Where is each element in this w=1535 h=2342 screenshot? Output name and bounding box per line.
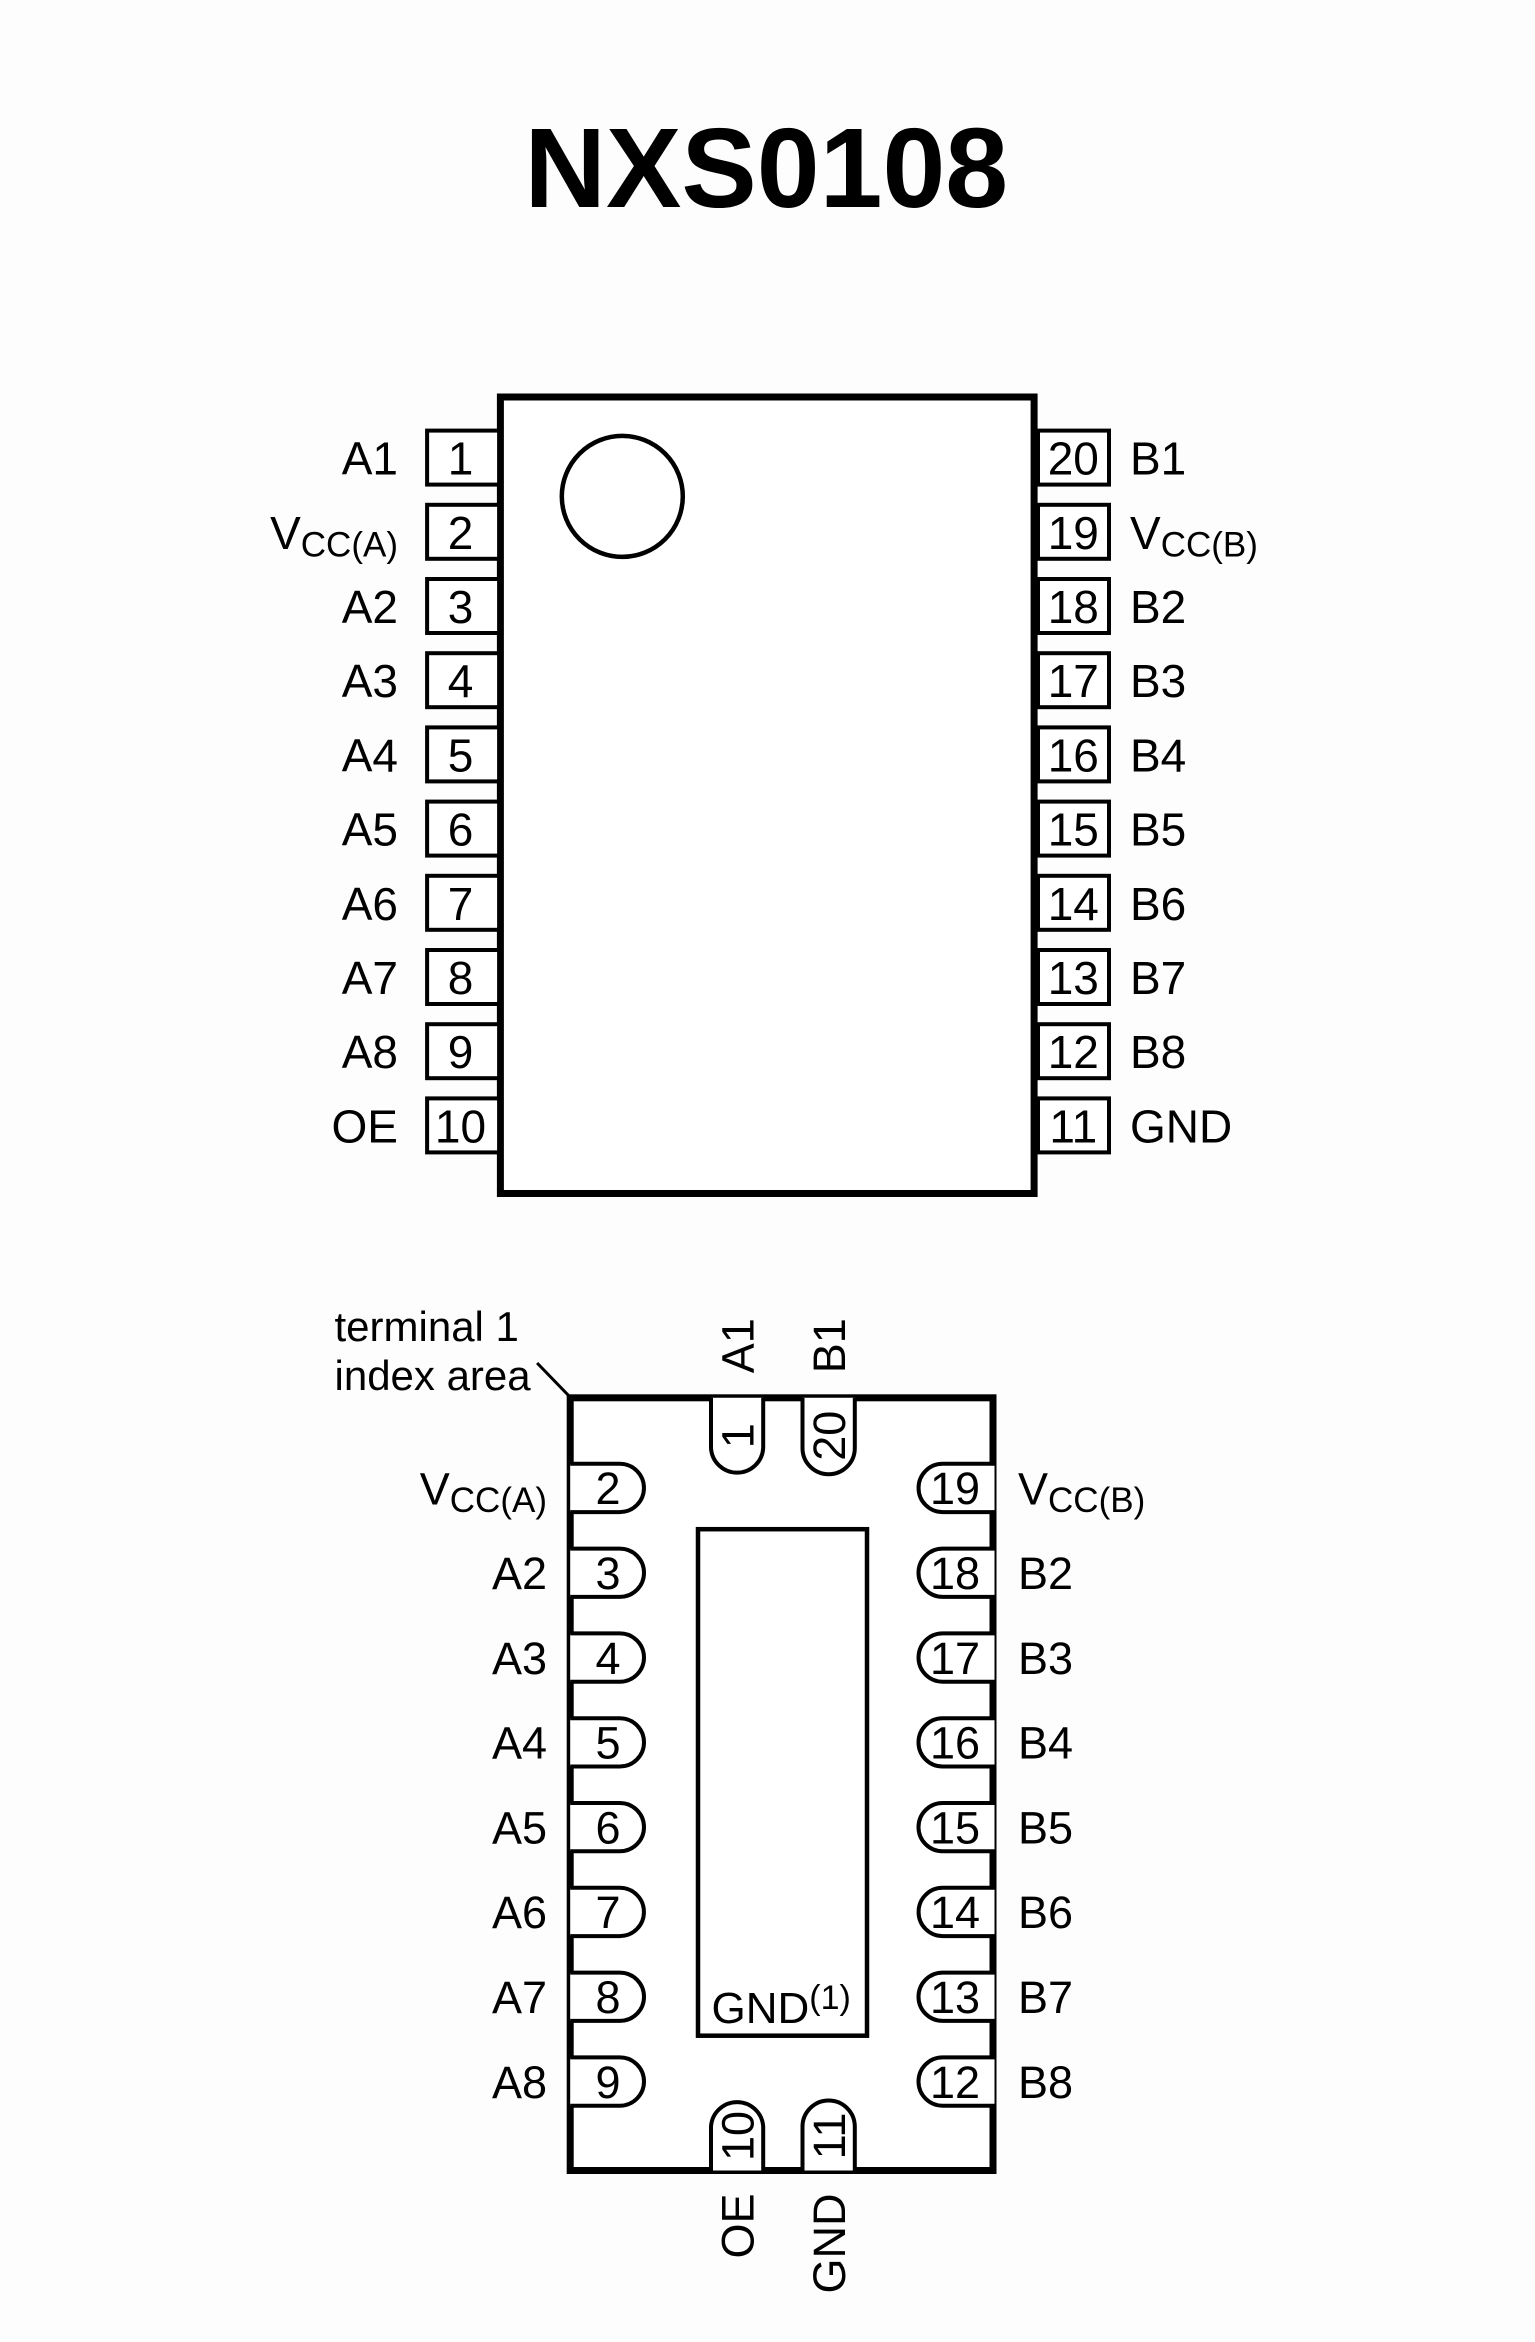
svg-text:3: 3 (448, 581, 474, 633)
svg-text:B2: B2 (1130, 581, 1186, 633)
svg-text:A3: A3 (342, 655, 398, 707)
svg-text:4: 4 (595, 1633, 620, 1684)
svg-text:8: 8 (448, 952, 474, 1004)
svg-text:6: 6 (595, 1803, 620, 1854)
svg-text:1: 1 (713, 1423, 764, 1448)
svg-text:GND: GND (804, 2194, 855, 2294)
svg-text:VCC(B): VCC(B) (1018, 1463, 1145, 1520)
svg-text:A2: A2 (342, 581, 398, 633)
svg-text:B4: B4 (1130, 729, 1186, 781)
svg-text:14: 14 (930, 1887, 980, 1938)
svg-text:9: 9 (595, 2057, 620, 2108)
svg-text:7: 7 (448, 878, 474, 930)
svg-text:A4: A4 (342, 729, 398, 781)
svg-text:B1: B1 (804, 1318, 855, 1373)
svg-text:11: 11 (1049, 1100, 1097, 1152)
svg-text:3: 3 (595, 1548, 620, 1599)
svg-text:B8: B8 (1018, 2057, 1073, 2108)
svg-text:B3: B3 (1130, 655, 1186, 707)
svg-text:A8: A8 (342, 1026, 398, 1078)
svg-text:B7: B7 (1018, 1972, 1073, 2023)
svg-text:B4: B4 (1018, 1718, 1073, 1769)
svg-text:13: 13 (930, 1972, 980, 2023)
svg-text:A5: A5 (492, 1803, 547, 1854)
svg-text:1: 1 (448, 433, 474, 485)
svg-text:A6: A6 (342, 878, 398, 930)
svg-text:17: 17 (1048, 655, 1099, 707)
svg-text:B5: B5 (1018, 1803, 1073, 1854)
svg-text:13: 13 (1048, 952, 1099, 1004)
svg-text:index area: index area (335, 1352, 532, 1399)
svg-text:A6: A6 (492, 1887, 547, 1938)
svg-text:B6: B6 (1018, 1887, 1073, 1938)
svg-text:B6: B6 (1130, 878, 1186, 930)
svg-text:A7: A7 (342, 952, 398, 1004)
svg-text:OE: OE (713, 2194, 764, 2259)
svg-text:18: 18 (930, 1548, 980, 1599)
svg-text:20: 20 (804, 1411, 855, 1461)
svg-text:A1: A1 (713, 1318, 764, 1373)
svg-text:11: 11 (804, 2113, 855, 2160)
svg-text:2: 2 (448, 507, 474, 559)
svg-text:16: 16 (1048, 729, 1099, 781)
svg-text:A1: A1 (342, 433, 398, 485)
svg-text:B7: B7 (1130, 952, 1186, 1004)
svg-text:9: 9 (448, 1026, 474, 1078)
svg-text:10: 10 (435, 1100, 486, 1152)
svg-text:6: 6 (448, 804, 474, 856)
svg-text:19: 19 (1048, 507, 1099, 559)
svg-text:2: 2 (595, 1463, 620, 1514)
svg-text:A3: A3 (492, 1633, 547, 1684)
svg-text:OE: OE (332, 1100, 398, 1152)
svg-text:12: 12 (930, 2057, 980, 2108)
svg-text:A5: A5 (342, 804, 398, 856)
svg-text:5: 5 (448, 729, 474, 781)
svg-text:B1: B1 (1130, 433, 1186, 485)
svg-text:A8: A8 (492, 2057, 547, 2108)
svg-text:A2: A2 (492, 1548, 547, 1599)
svg-text:10: 10 (713, 2111, 764, 2161)
svg-text:B8: B8 (1130, 1026, 1186, 1078)
svg-text:5: 5 (595, 1718, 620, 1769)
svg-text:8: 8 (595, 1972, 620, 2023)
svg-text:14: 14 (1048, 878, 1099, 930)
svg-text:20: 20 (1048, 433, 1099, 485)
svg-text:16: 16 (930, 1718, 980, 1769)
svg-text:VCC(A): VCC(A) (420, 1463, 547, 1520)
svg-text:7: 7 (595, 1887, 620, 1938)
svg-text:A7: A7 (492, 1972, 547, 2023)
svg-text:18: 18 (1048, 581, 1099, 633)
svg-text:4: 4 (448, 655, 474, 707)
svg-text:15: 15 (1048, 804, 1099, 856)
svg-text:12: 12 (1048, 1026, 1099, 1078)
svg-text:B5: B5 (1130, 804, 1186, 856)
svg-text:19: 19 (930, 1463, 980, 1514)
svg-text:B3: B3 (1018, 1633, 1073, 1684)
svg-text:VCC(A): VCC(A) (270, 507, 398, 565)
svg-text:terminal 1: terminal 1 (335, 1303, 519, 1350)
svg-text:15: 15 (930, 1803, 980, 1854)
svg-text:A4: A4 (492, 1718, 547, 1769)
svg-text:17: 17 (930, 1633, 980, 1684)
svg-text:GND: GND (1130, 1100, 1232, 1152)
svg-text:NXS0108: NXS0108 (524, 105, 1008, 231)
svg-text:B2: B2 (1018, 1548, 1073, 1599)
svg-text:VCC(B): VCC(B) (1130, 507, 1258, 565)
